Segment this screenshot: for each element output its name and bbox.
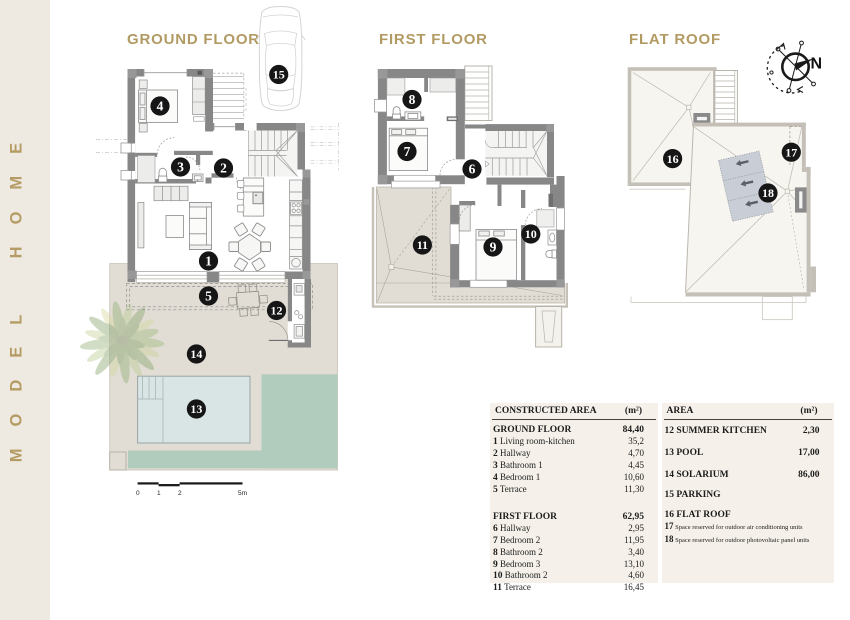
svg-text:18: 18 <box>762 186 774 200</box>
svg-text:14: 14 <box>190 347 202 361</box>
svg-text:13: 13 <box>190 402 202 416</box>
svg-text:1: 1 <box>205 254 212 269</box>
svg-text:0: 0 <box>136 490 140 497</box>
svg-text:1: 1 <box>157 490 161 497</box>
svg-text:15: 15 <box>273 68 285 82</box>
svg-text:6: 6 <box>469 162 476 177</box>
svg-text:4: 4 <box>157 99 164 114</box>
svg-text:5m: 5m <box>238 490 247 497</box>
svg-text:9: 9 <box>490 240 497 255</box>
svg-text:16: 16 <box>667 152 679 166</box>
svg-text:10: 10 <box>525 227 537 241</box>
svg-text:2: 2 <box>220 161 227 176</box>
svg-text:17: 17 <box>785 145 797 159</box>
svg-text:11: 11 <box>417 238 428 252</box>
svg-text:N: N <box>811 56 823 73</box>
svg-text:3: 3 <box>177 160 184 175</box>
svg-text:8: 8 <box>409 92 416 107</box>
svg-text:7: 7 <box>404 144 411 159</box>
svg-text:12: 12 <box>271 304 283 318</box>
svg-text:2: 2 <box>178 490 182 497</box>
svg-text:5: 5 <box>205 289 212 304</box>
